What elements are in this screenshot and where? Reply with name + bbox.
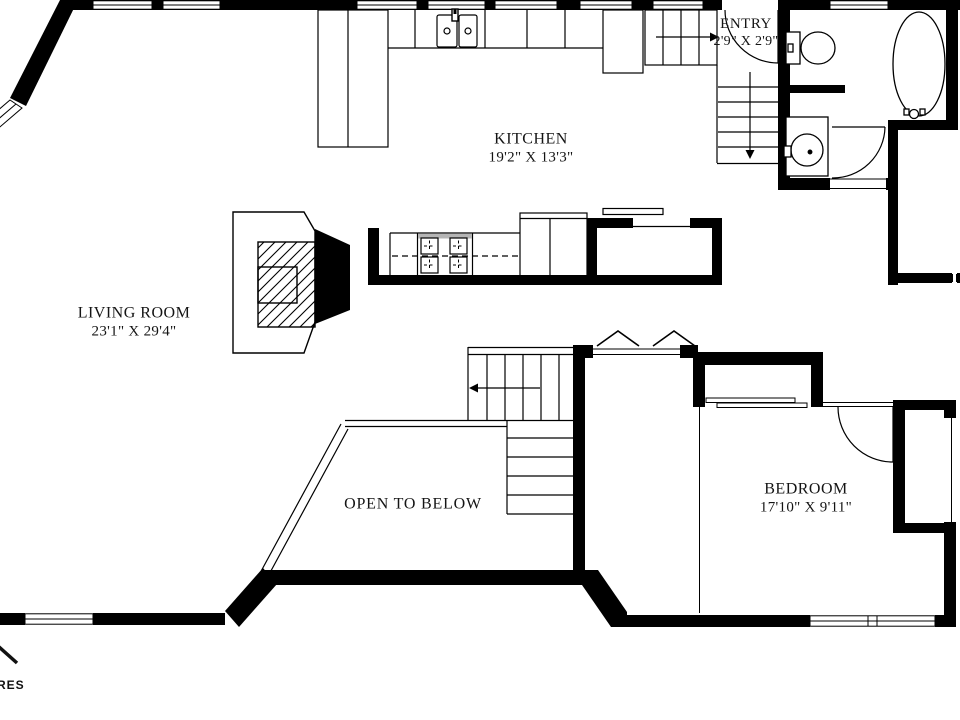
closet-shelf <box>603 209 663 215</box>
room-dimensions: 17'10" X 9'11" <box>760 499 852 517</box>
wall-opening <box>953 274 957 282</box>
diagonal-wall <box>10 0 78 106</box>
doorway-threshold <box>830 179 886 189</box>
room-name: OPEN TO BELOW <box>344 495 482 514</box>
room-name: BEDROOM <box>760 480 852 499</box>
bathtub <box>893 12 945 119</box>
vanity-sink <box>784 117 828 176</box>
window <box>93 1 152 9</box>
arrow-down <box>746 150 755 159</box>
firebox <box>258 242 315 327</box>
diagonal-wall <box>582 570 627 627</box>
window <box>830 1 888 9</box>
bathroom-door-swing <box>832 127 885 178</box>
floor-plan: LIVING ROOM 23'1" X 29'4" KITCHEN 19'2" … <box>0 0 960 720</box>
kitchen-cabinet-tall <box>318 10 388 147</box>
room-dimensions: 23'1" X 29'4" <box>78 323 191 341</box>
room-name: KITCHEN <box>489 130 574 149</box>
window-diagonal <box>0 100 22 132</box>
logo-text: RES <box>0 678 25 692</box>
doors <box>597 10 893 613</box>
logo-mark-icon <box>0 640 60 710</box>
kitchen-island <box>520 213 587 277</box>
room-label-open-to-below: OPEN TO BELOW <box>344 495 482 514</box>
window <box>810 616 935 626</box>
room-label-entry: ENTRY 2'9" X 2'9" <box>714 16 779 50</box>
fireplace <box>233 212 315 353</box>
bathroom-partition-wall <box>785 85 845 93</box>
floor-plan-drawing <box>0 0 960 720</box>
refrigerator <box>603 10 643 73</box>
room-name: LIVING ROOM <box>78 304 191 323</box>
room-dimensions: 2'9" X 2'9" <box>714 33 779 50</box>
window <box>495 1 557 9</box>
room-dimensions: 19'2" X 13'3" <box>489 149 574 167</box>
toilet <box>786 32 835 64</box>
diagonal-wall <box>225 568 277 627</box>
bathroom-fixtures <box>784 12 945 176</box>
open-to-below-railing <box>259 424 348 580</box>
window <box>163 1 220 9</box>
window <box>653 1 703 9</box>
kitchen-sink <box>437 9 477 47</box>
closet-sliding-doors <box>706 398 807 408</box>
window <box>580 1 632 9</box>
room-label-kitchen: KITCHEN 19'2" X 13'3" <box>489 130 574 167</box>
watermark-logo: RES <box>0 640 60 710</box>
entry-doorway <box>722 0 778 10</box>
room-name: ENTRY <box>714 16 779 33</box>
arrow-left <box>469 384 478 393</box>
window <box>428 1 485 9</box>
doorway-threshold <box>593 349 680 355</box>
room-label-bedroom: BEDROOM 17'10" X 9'11" <box>760 480 852 517</box>
stairs <box>345 347 573 514</box>
doorway-threshold <box>823 403 893 407</box>
room-label-living-room: LIVING ROOM 23'1" X 29'4" <box>78 304 191 341</box>
chevron-doors <box>597 331 695 346</box>
window <box>357 1 417 9</box>
window <box>25 614 93 624</box>
bedroom-door-swing <box>838 407 893 462</box>
chimney <box>315 229 350 324</box>
